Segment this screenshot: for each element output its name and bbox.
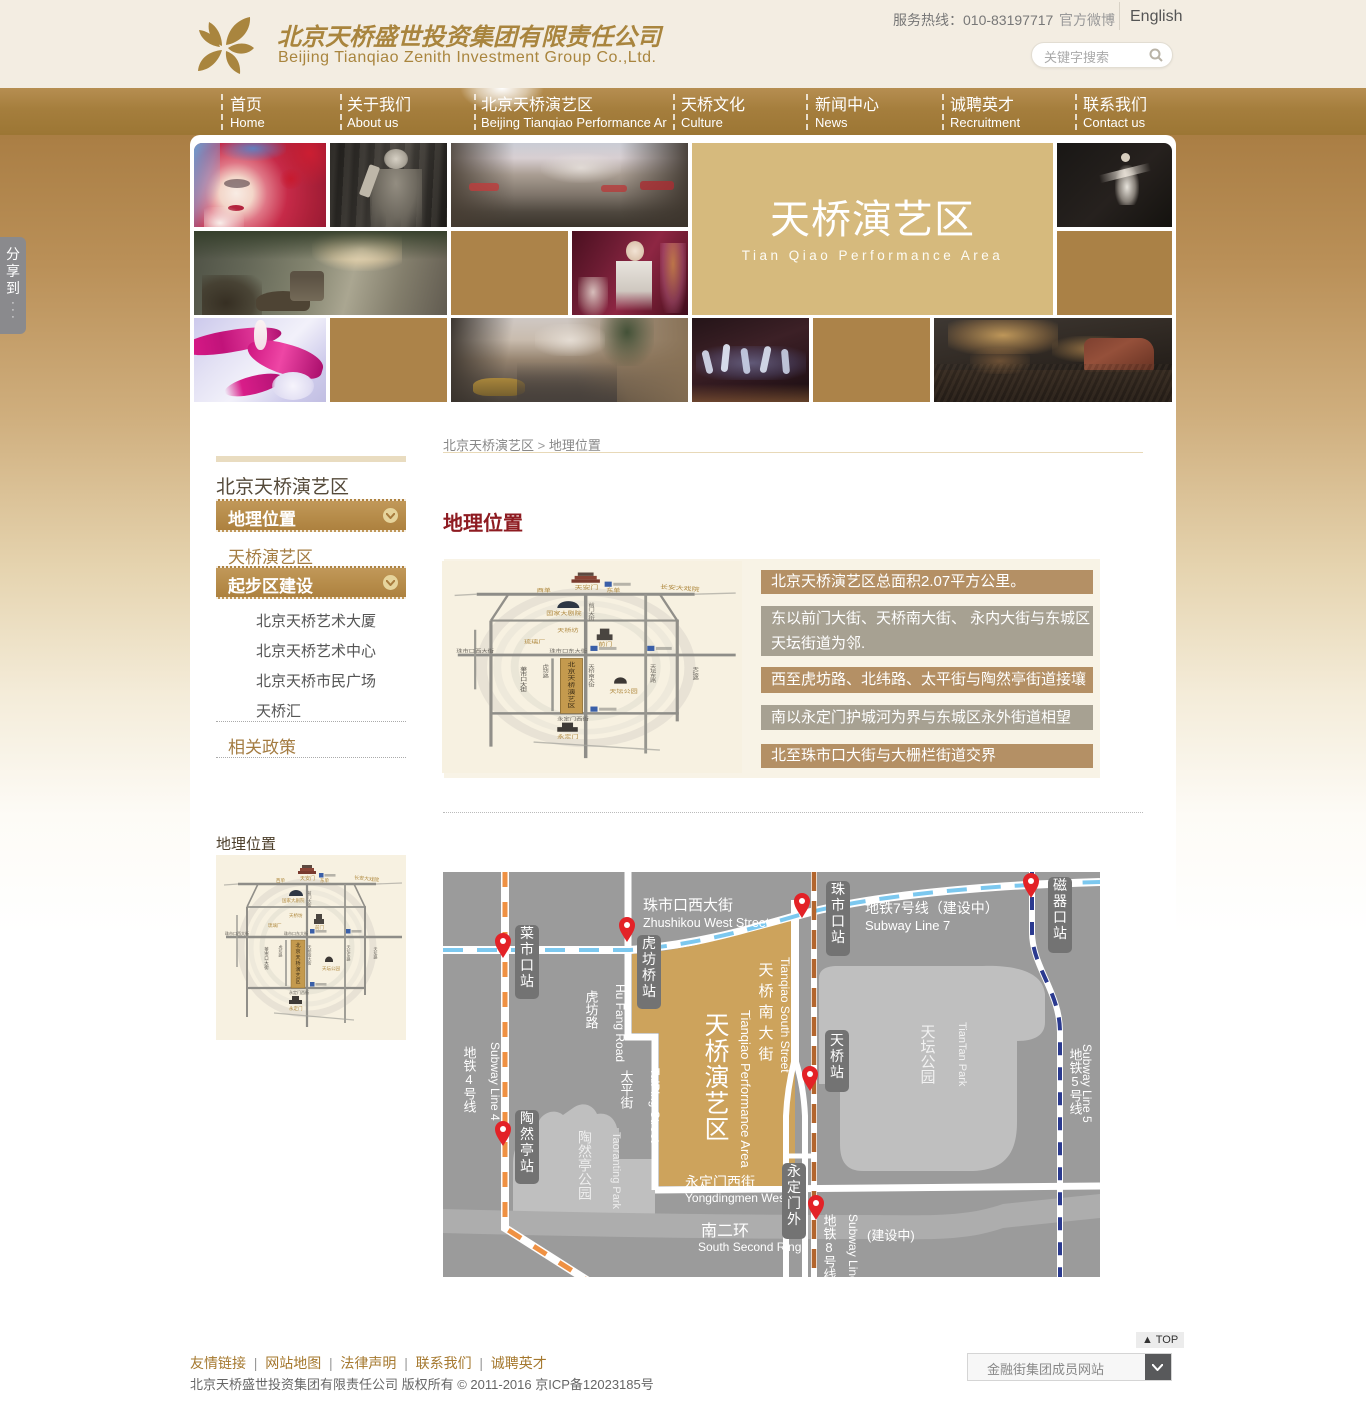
svg-text:Tianqiao Performance Area: Tianqiao Performance Area: [738, 1010, 753, 1169]
svg-text:地铁7号线（建设中）: 地铁7号线（建设中）: [865, 900, 999, 916]
svg-text:Hu Fang Road: Hu Fang Road: [613, 984, 627, 1062]
svg-text:Zhushikou West Street: Zhushikou West Street: [643, 916, 770, 930]
svg-text:陶然亭公园: 陶然亭公园: [577, 1130, 593, 1200]
svg-text:磁器口站: 磁器口站: [1053, 877, 1067, 941]
svg-text:TaiPing Street: TaiPing Street: [648, 1068, 662, 1143]
svg-text:Yongdingmen West: Yongdingmen West: [685, 1191, 789, 1205]
svg-text:珠市口西大街: 珠市口西大街: [643, 897, 733, 914]
svg-text:Subway Line 4: Subway Line 4: [488, 1042, 502, 1121]
svg-text:虎坊路: 虎坊路: [584, 990, 599, 1029]
svg-text:天桥演艺区: 天桥演艺区: [701, 1012, 730, 1142]
svg-text:Subway Line 5: Subway Line 5: [1080, 1044, 1094, 1123]
svg-text:永定门西街: 永定门西街: [685, 1174, 755, 1190]
svg-text:Taoranting Park: Taoranting Park: [610, 1132, 622, 1210]
svg-text:South Second Ring: South Second Ring: [698, 1240, 801, 1254]
svg-text:陶然亭站: 陶然亭站: [520, 1110, 534, 1174]
svg-text:Subway Line 8: Subway Line 8: [846, 1214, 860, 1277]
svg-text:(建设中): (建设中): [867, 1228, 915, 1243]
svg-text:天坛公园: 天坛公园: [919, 1024, 936, 1084]
svg-text:天桥站: 天桥站: [830, 1032, 844, 1080]
svg-text:天桥南大街: 天桥南大街: [757, 962, 774, 1067]
svg-text:菜市口站: 菜市口站: [520, 925, 534, 989]
svg-text:南二环: 南二环: [701, 1222, 749, 1240]
svg-text:地铁4号线: 地铁4号线: [462, 1046, 477, 1113]
svg-text:TianTan Park: TianTan Park: [956, 1022, 968, 1087]
svg-text:珠市口站: 珠市口站: [831, 881, 845, 945]
svg-text:虎坊桥站: 虎坊桥站: [642, 935, 656, 999]
svg-text:永定门外: 永定门外: [787, 1163, 801, 1227]
svg-text:地铁8号线: 地铁8号线: [822, 1214, 837, 1277]
svg-text:Tianqiao South Street: Tianqiao South Street: [778, 957, 792, 1073]
svg-text:Subway Line 7: Subway Line 7: [865, 918, 950, 933]
svg-text:太平街: 太平街: [619, 1070, 634, 1109]
